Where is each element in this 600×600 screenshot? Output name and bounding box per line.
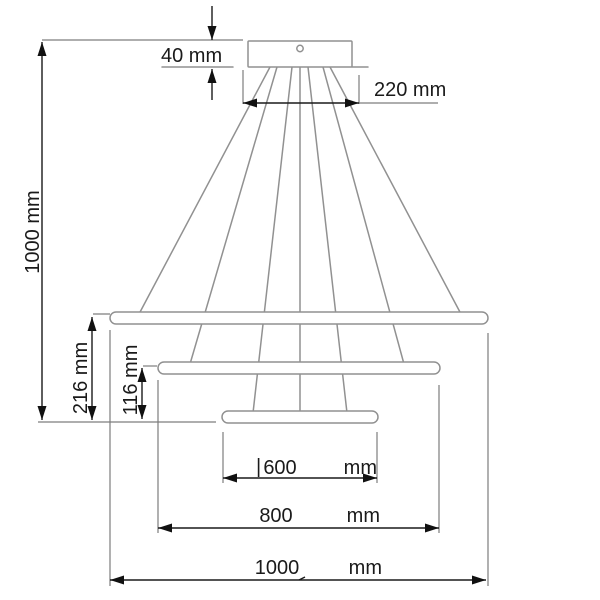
label-canopy-width: 220 mm: [374, 79, 446, 101]
label-800-unit: mm: [347, 505, 380, 527]
ring-medium: [158, 362, 440, 374]
suspension-wire: [330, 67, 461, 314]
label-drop-216: 216 mm: [70, 342, 92, 414]
suspension-wires: [139, 67, 461, 413]
suspension-wire: [253, 67, 292, 413]
drawing-svg: 40 mm 220 mm 1000 mm 216 mm 116 mm | 600…: [0, 0, 600, 600]
suspension-wire: [308, 67, 347, 413]
suspension-wire: [139, 67, 270, 314]
dimension-drawing: 40 mm 220 mm 1000 mm 216 mm 116 mm | 600…: [0, 0, 600, 600]
label-1000-value: 1000: [255, 557, 300, 579]
label-800-value: 800: [259, 505, 292, 527]
label-overall-height: 1000 mm: [22, 190, 44, 273]
label-600-prefix-tick: |: [256, 456, 261, 478]
label-drop-116: 116 mm: [120, 345, 142, 416]
ring-small: [222, 411, 378, 423]
ring-large: [110, 312, 488, 324]
label-canopy-height: 40 mm: [161, 45, 222, 67]
label-1000-unit: mm: [349, 557, 382, 579]
label-600-unit: mm: [344, 457, 377, 479]
label-600-value: 600: [263, 457, 296, 479]
